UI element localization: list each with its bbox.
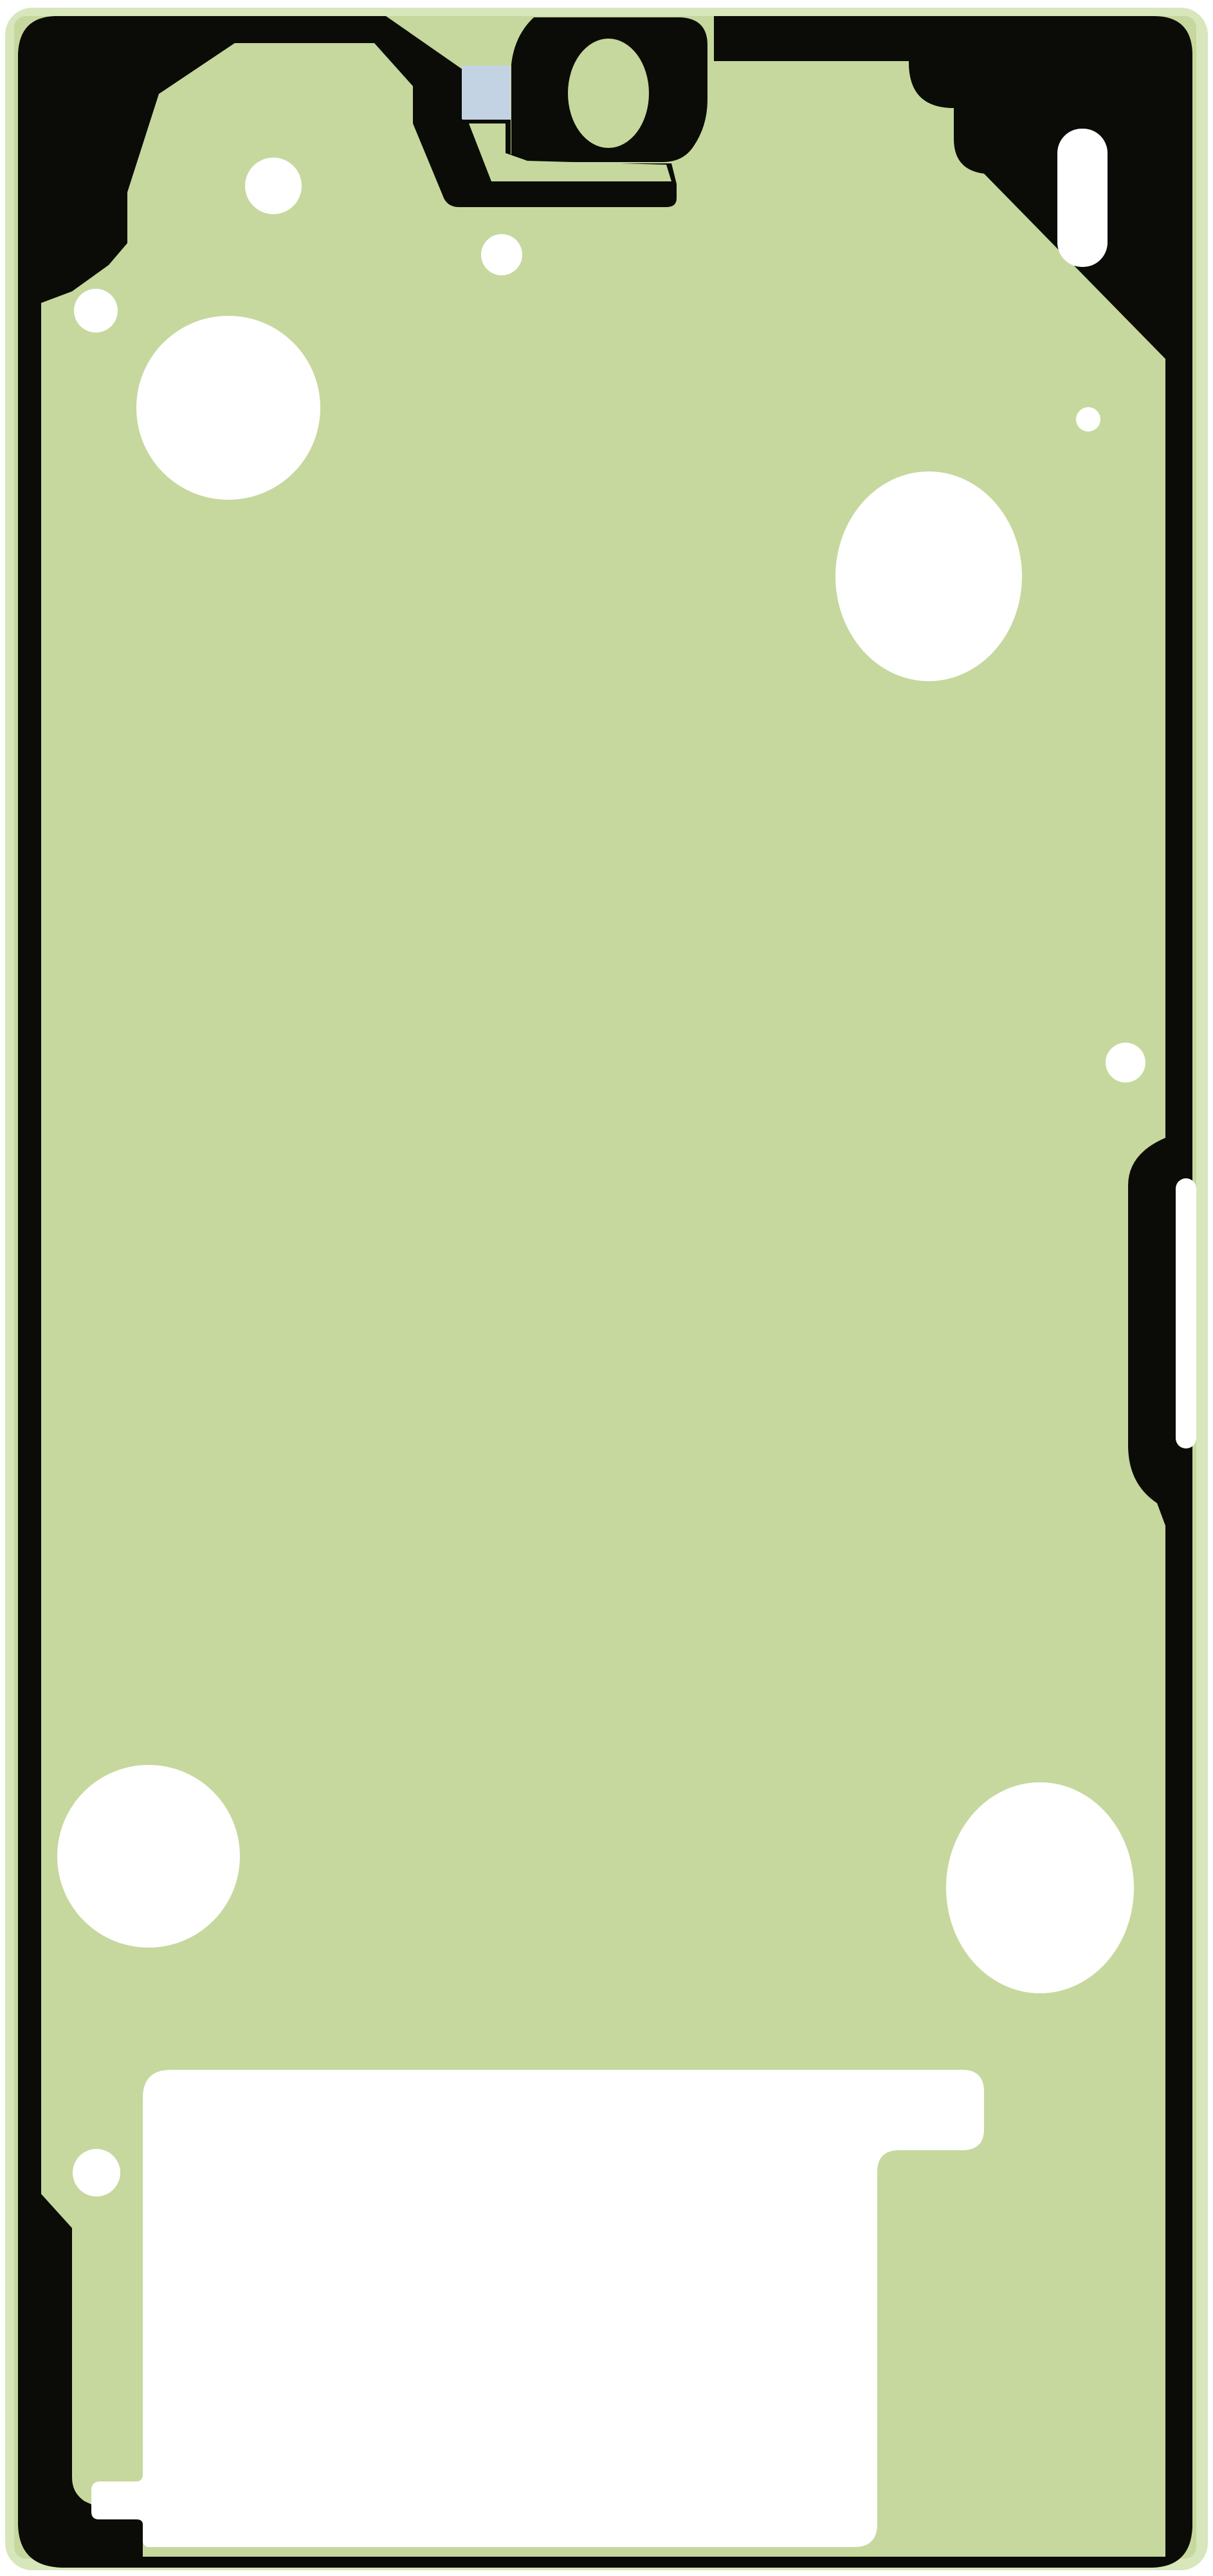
hole-left-tiny xyxy=(74,289,118,333)
hole-bottom-right-large xyxy=(946,1782,1134,1993)
cutout-bottom-battery-area xyxy=(91,2070,984,2547)
pull-tab xyxy=(462,66,511,120)
hole-bottom-left-dot xyxy=(73,2149,120,2197)
hole-mid-right-small xyxy=(1106,1043,1145,1082)
slot-right-middle xyxy=(1176,1178,1196,1448)
product-photo xyxy=(0,0,1213,2576)
hole-top-small xyxy=(245,158,302,214)
adhesive-sheet-illustration xyxy=(0,0,1213,2576)
hole-bottom-left-large xyxy=(57,1765,240,1948)
hole-top-left-large xyxy=(136,316,320,500)
hole-below-camera xyxy=(481,234,522,275)
camera-oval-window xyxy=(568,39,649,148)
slot-top-right xyxy=(1057,129,1108,267)
hole-right-large xyxy=(835,471,1022,681)
hole-right-edge-small xyxy=(1076,407,1100,432)
